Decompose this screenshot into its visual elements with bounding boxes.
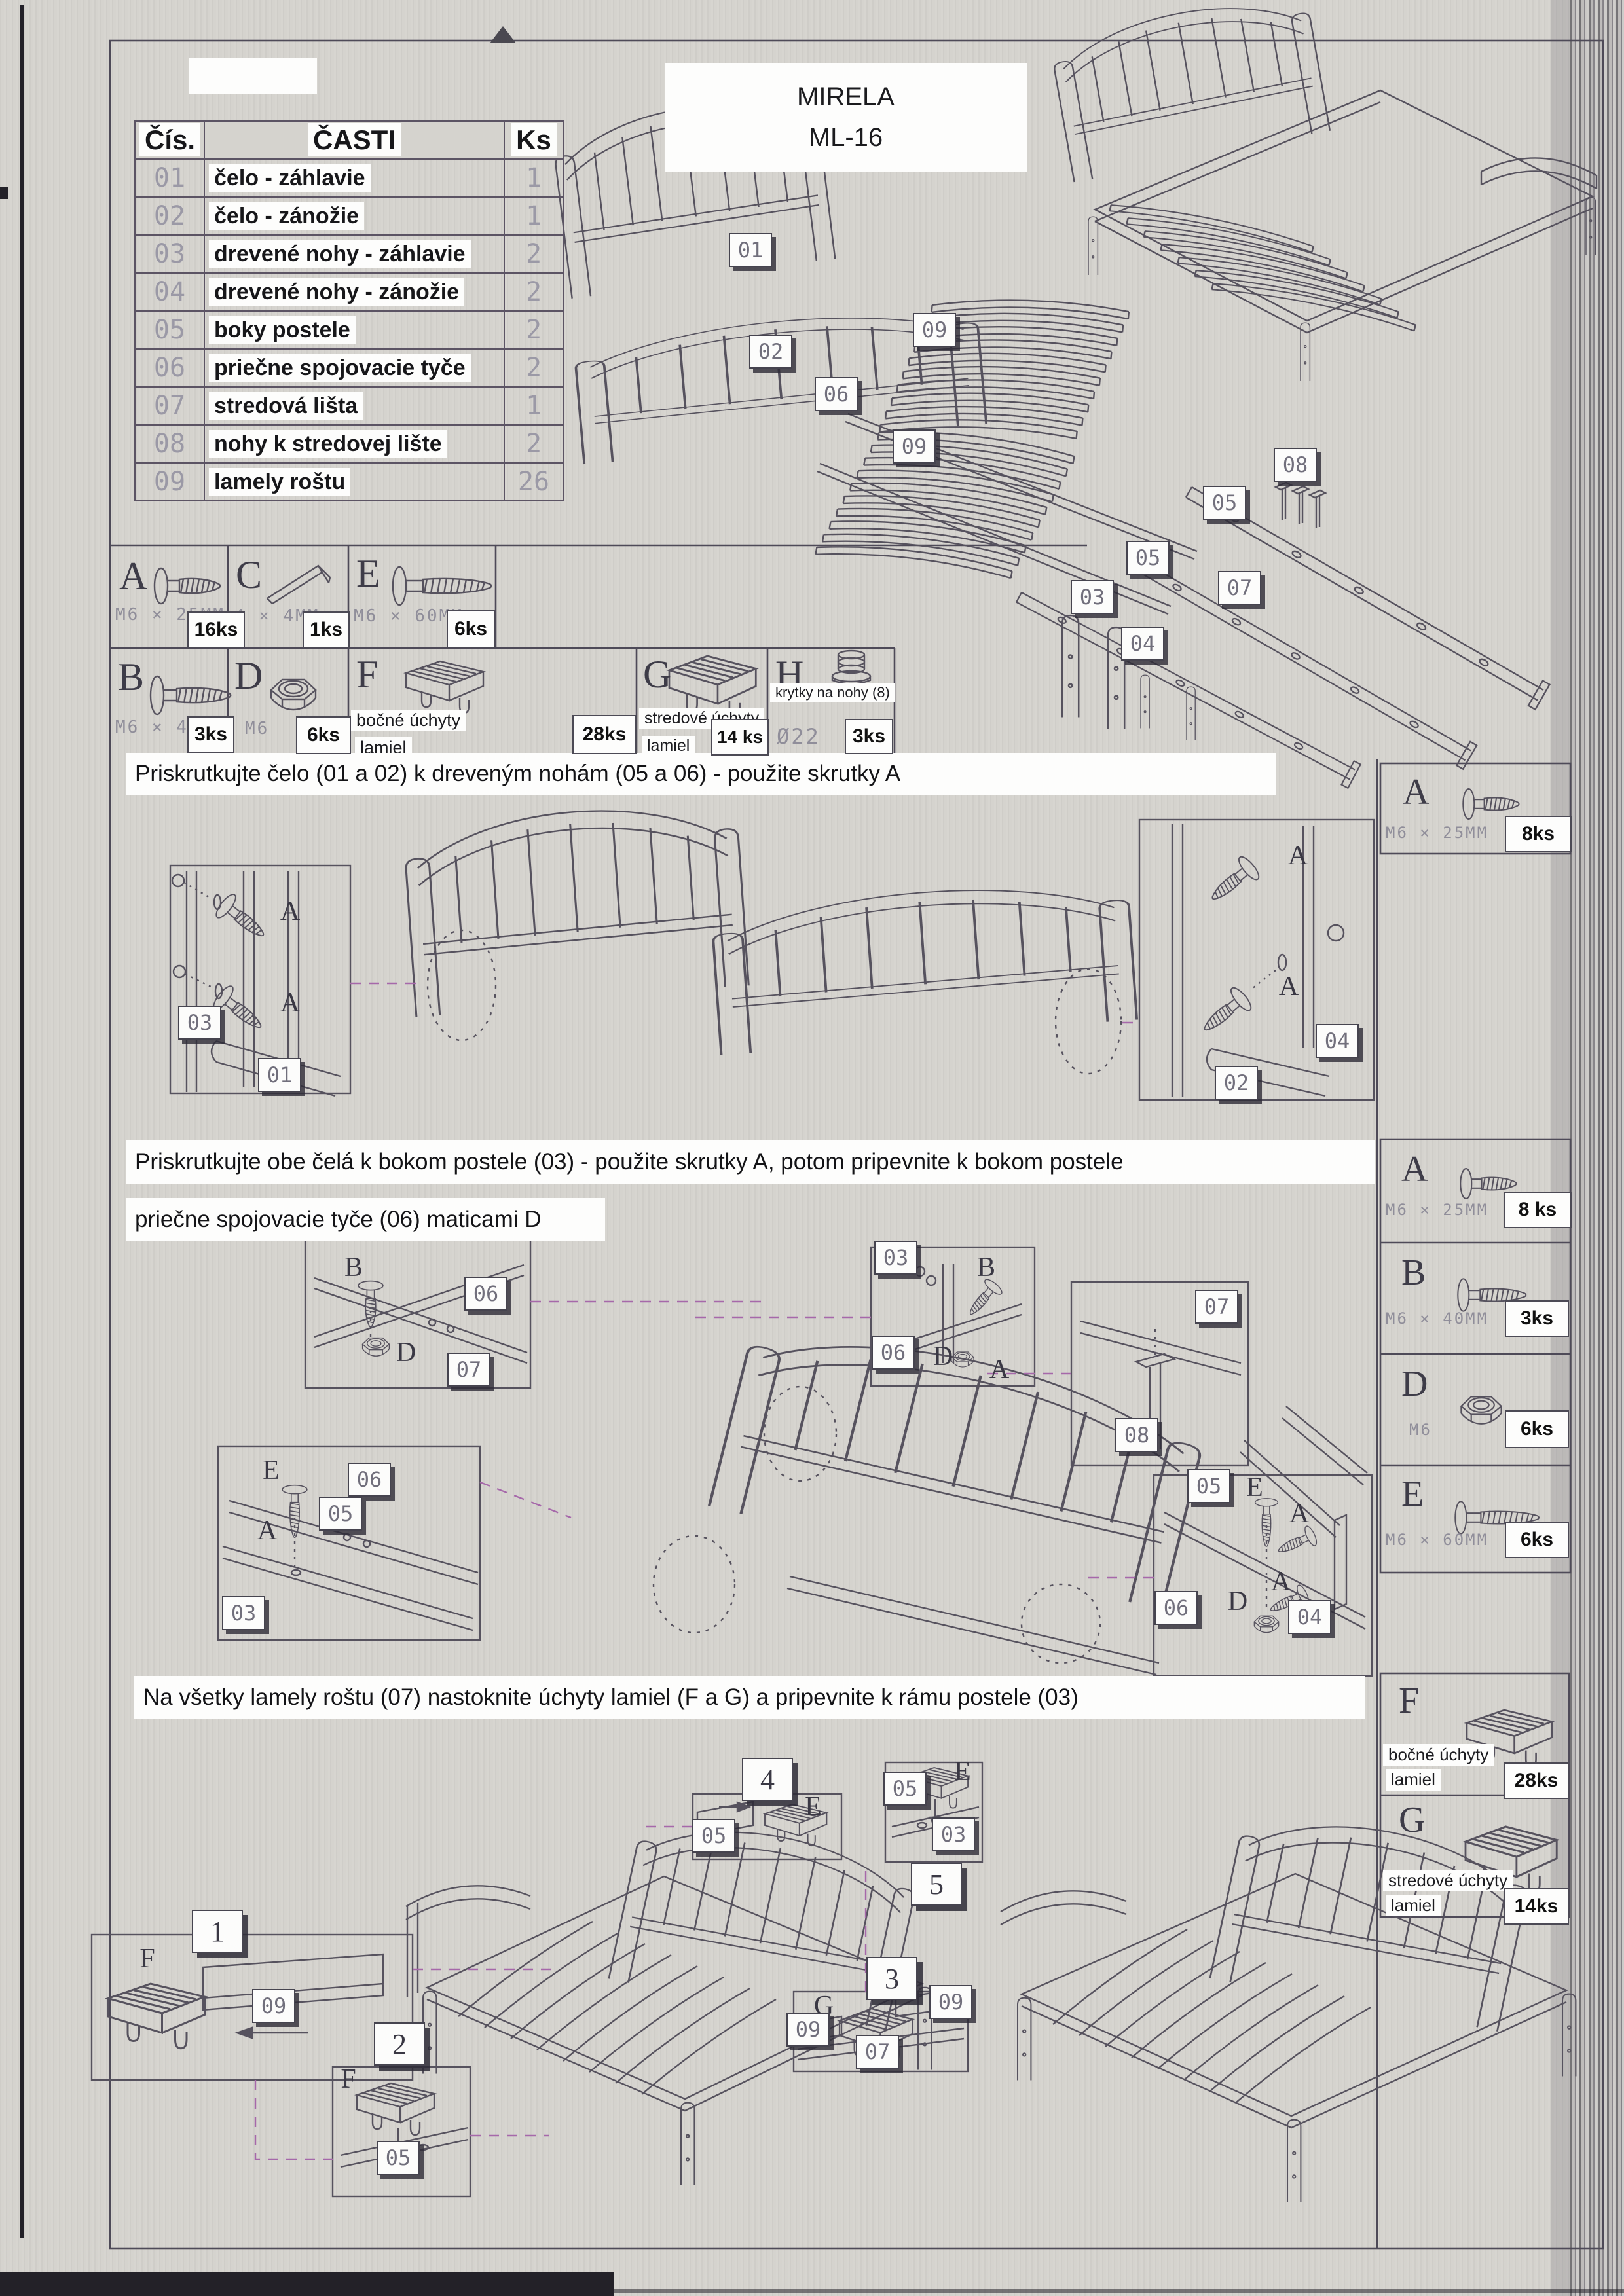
hw-letter-b: B: [118, 655, 144, 700]
nut-label: D: [1228, 1586, 1247, 1617]
step2-hw-spec-b: M6 × 40MM: [1386, 1309, 1488, 1328]
part-tag: 08: [1115, 1418, 1158, 1452]
substep-tag: 1: [192, 1910, 243, 1953]
product-title-box: MIRELA ML-16: [665, 63, 1027, 172]
screw-label: B: [977, 1252, 995, 1283]
screw-short-icon: [1463, 789, 1519, 819]
product-model: ML-16: [809, 117, 883, 158]
step2-hw-spec-e: M6 × 60MM: [1386, 1531, 1488, 1549]
nut-label: D: [933, 1341, 953, 1372]
parts-table: Čís. ČASTI Ks 01 čelo - záhlavie 1 02 če…: [134, 120, 564, 501]
part-name: boky postele: [204, 311, 504, 349]
part-qty: 2: [504, 311, 563, 349]
part-tag: 08: [1274, 448, 1317, 482]
step2-instruction-line1: Priskrutkujte obe čelá k bokom postele (…: [126, 1140, 1375, 1184]
part-name: nohy k stredovej lište: [204, 425, 504, 463]
slat-stacks: [815, 287, 1129, 596]
parts-table-row: 04 drevené nohy - zánožie 2: [135, 273, 563, 311]
hw-qty-c: 1ks: [303, 611, 350, 648]
parts-table-row: 01 čelo - záhlavie 1: [135, 159, 563, 197]
part-tag: 05: [377, 2141, 420, 2175]
part-name: stredová lišta: [204, 387, 504, 425]
exploded-bed: [1048, 0, 1596, 381]
step3-hw-letter-f: F: [1399, 1680, 1419, 1722]
hw-letter-e: E: [356, 551, 380, 596]
step1-hw-spec-a: M6 × 25MM: [1386, 824, 1488, 842]
part-number: 09: [135, 463, 204, 501]
hw-letter-a: A: [119, 554, 147, 599]
parts-table-header: Čís. ČASTI Ks: [135, 121, 563, 159]
side-rail: [1127, 551, 1477, 769]
part-name: čelo - zánožie: [204, 197, 504, 235]
scan-bottom-bar: [0, 2272, 614, 2296]
step2-hw-qty-b: 3ks: [1505, 1300, 1569, 1337]
part-tag: 01: [258, 1058, 301, 1092]
part-qty: 1: [504, 387, 563, 425]
hw-desc-f-1: bočné úchyty: [351, 710, 466, 731]
substep-tag: 2: [374, 2022, 425, 2066]
step3-hw-qty-f: 28ks: [1504, 1762, 1569, 1799]
screw-label: E: [954, 1756, 971, 1787]
col-header-qty: Ks: [504, 121, 563, 159]
step2-hw-qty-a: 8 ks: [1504, 1192, 1572, 1228]
nut-icon: [271, 680, 316, 710]
parts-table-row: 09 lamely roštu 26: [135, 463, 563, 501]
screw-label: A: [280, 987, 300, 1019]
screw-label: A: [989, 1354, 1009, 1385]
parts-table-row: 05 boky postele 2: [135, 311, 563, 349]
col-header-number: Čís.: [135, 121, 204, 159]
screw-label: E: [263, 1455, 280, 1486]
part-tag: 05: [1126, 541, 1170, 575]
part-tag: 01: [729, 233, 772, 267]
substep-tag: 5: [911, 1863, 962, 1906]
screw-short-icon: [155, 568, 220, 604]
hw-qty-b: 3ks: [187, 716, 234, 753]
step2-hw-letter-e: E: [1401, 1473, 1424, 1515]
part-tag: 03: [1071, 580, 1114, 614]
col-header-parts: ČASTI: [204, 121, 504, 159]
step2-hw-letter-d: D: [1401, 1363, 1428, 1405]
part-number: 02: [135, 197, 204, 235]
scan-left-tick: [0, 187, 8, 199]
parts-table-row: 06 priečne spojovacie tyče 2: [135, 349, 563, 387]
parts-table-row: 02 čelo - zánožie 1: [135, 197, 563, 235]
step3-hw-qty-g: 14ks: [1504, 1888, 1569, 1925]
screw-label: E: [1246, 1472, 1263, 1503]
part-number: 08: [135, 425, 204, 463]
part-qty: 1: [504, 159, 563, 197]
holder-label: F: [341, 2064, 356, 2095]
part-tag: 07: [856, 2035, 899, 2069]
part-number: 05: [135, 311, 204, 349]
part-name: drevené nohy - zánožie: [204, 273, 504, 311]
part-tag: 04: [1288, 1600, 1331, 1634]
screw-label: A: [1289, 1498, 1309, 1529]
hw-letter-c: C: [236, 553, 262, 598]
part-qty: 1: [504, 197, 563, 235]
part-tag: 07: [1195, 1290, 1238, 1324]
step2-hw-letter-a: A: [1401, 1148, 1428, 1190]
part-tag: 09: [252, 1989, 295, 2023]
part-tag: 03: [874, 1241, 917, 1275]
part-name: lamely roštu: [204, 463, 504, 501]
hw-letter-f: F: [356, 652, 378, 697]
hw-qty-f: 28ks: [572, 715, 637, 754]
step2-hw-spec-a: M6 × 25MM: [1386, 1201, 1488, 1219]
part-tag: 05: [1203, 486, 1246, 520]
step3-hw-desc-f-1: bočné úchyty: [1383, 1744, 1494, 1766]
part-tag: 07: [1218, 571, 1261, 605]
allen-key-icon: [267, 566, 330, 604]
part-tag: 06: [348, 1463, 391, 1497]
step3-instruction: Na všetky lamely roštu (07) nastoknite ú…: [134, 1676, 1365, 1719]
part-tag: 04: [1316, 1024, 1359, 1058]
hw-spec-h: Ø22: [777, 724, 821, 749]
step2-hw-qty-e: 6ks: [1505, 1522, 1569, 1558]
part-tag: 09: [929, 1985, 972, 2019]
part-tag: 06: [1154, 1591, 1198, 1625]
part-name: drevené nohy - záhlavie: [204, 235, 504, 273]
holder-label: F: [139, 1943, 155, 1975]
step1-instruction: Priskrutkujte čelo (01 a 02) k dreveným …: [126, 753, 1276, 795]
hw-letter-d: D: [234, 653, 263, 699]
nut-label: D: [396, 1337, 416, 1368]
screw-label: B: [344, 1252, 363, 1283]
substep-tag: 3: [866, 1957, 917, 2000]
part-number: 07: [135, 387, 204, 425]
part-qty: 2: [504, 273, 563, 311]
hw-qty-a: 16ks: [187, 611, 245, 648]
hw-qty-d: 6ks: [296, 716, 351, 754]
step3-left-bed: [406, 1808, 931, 2185]
step3-hw-letter-g: G: [1399, 1799, 1425, 1841]
hw-qty-e: 6ks: [447, 610, 495, 648]
part-tag: 06: [464, 1277, 507, 1311]
part-name: čelo - záhlavie: [204, 159, 504, 197]
step1-hw-qty-a: 8ks: [1505, 816, 1572, 852]
step3-hw-desc-f-2: lamiel: [1386, 1769, 1441, 1791]
part-tag: 05: [1187, 1469, 1230, 1503]
step3-hw-desc-g-1: stredové úchyty: [1383, 1870, 1513, 1891]
parts-table-row: 08 nohy k stredovej lište 2: [135, 425, 563, 463]
screw-label: A: [1279, 971, 1299, 1002]
part-tag: 09: [893, 429, 936, 464]
part-tag: 03: [222, 1596, 265, 1630]
screw-label: A: [257, 1515, 277, 1546]
wood-leg-short: [1141, 675, 1149, 728]
screw-label: A: [280, 896, 300, 927]
part-tag: 05: [692, 1819, 735, 1853]
screw-medium-icon: [151, 676, 231, 714]
part-tag: 03: [178, 1006, 221, 1040]
part-name: priečne spojovacie tyče: [204, 349, 504, 387]
part-tag: 09: [786, 2013, 830, 2047]
hw-letter-g: G: [643, 652, 671, 697]
part-number: 01: [135, 159, 204, 197]
scan-triangle-mark: [490, 26, 516, 43]
screw-long-icon: [393, 567, 491, 605]
cross-rods: [817, 414, 1197, 614]
part-qty: 2: [504, 425, 563, 463]
part-number: 03: [135, 235, 204, 273]
step2-hw-spec-d: M6: [1409, 1421, 1432, 1439]
part-tag: 02: [1215, 1066, 1258, 1100]
part-qty: 26: [504, 463, 563, 501]
step2-hw-letter-b: B: [1401, 1252, 1426, 1294]
hw-spec-d: M6: [245, 719, 269, 738]
step3-right-bed: [1001, 1802, 1576, 2202]
substep-tag: 4: [742, 1758, 793, 1801]
hw-qty-g: 14 ks: [711, 719, 769, 756]
screw-label: E: [805, 1791, 822, 1823]
step2-instruction-line2: priečne spojovacie tyče (06) maticami D: [126, 1198, 605, 1241]
scan-left-edge: [20, 5, 24, 2238]
step3-hw-desc-g-2: lamiel: [1386, 1895, 1441, 1916]
screw-label: A: [1271, 1566, 1291, 1597]
step2-hw-qty-d: 6ks: [1505, 1410, 1569, 1448]
side-slat-holder-icon: [406, 661, 483, 713]
assembly-instruction-page: Čís. ČASTI Ks 01 čelo - záhlavie 1 02 če…: [0, 0, 1624, 2296]
parts-table-row: 03 drevené nohy - záhlavie 2: [135, 235, 563, 273]
part-tag: 03: [932, 1817, 975, 1851]
part-qty: 2: [504, 349, 563, 387]
part-tag: 02: [749, 335, 792, 369]
part-tag: 05: [319, 1497, 362, 1531]
part-tag: 06: [815, 377, 858, 411]
part-qty: 2: [504, 235, 563, 273]
parts-table-row: 07 stredová lišta 1: [135, 387, 563, 425]
hw-desc-h: krytky na nohy (8): [770, 683, 895, 702]
step3-diagram: [92, 1710, 1576, 2202]
scan-bottom-line: [614, 2289, 1624, 2293]
leg-cap-icon: [832, 651, 870, 684]
part-tag: 07: [447, 1353, 490, 1387]
screw-label: A: [1288, 840, 1308, 871]
step1-hw-letter-a: A: [1403, 771, 1429, 813]
part-tag: 06: [872, 1336, 915, 1370]
nut-icon: [1461, 1396, 1501, 1423]
part-tag: 05: [883, 1772, 927, 1806]
part-number: 06: [135, 349, 204, 387]
part-tag: 04: [1121, 627, 1164, 661]
hw-qty-h: 3ks: [845, 719, 893, 754]
product-name: MIRELA: [797, 77, 895, 117]
part-number: 04: [135, 273, 204, 311]
part-tag: 09: [913, 313, 956, 347]
